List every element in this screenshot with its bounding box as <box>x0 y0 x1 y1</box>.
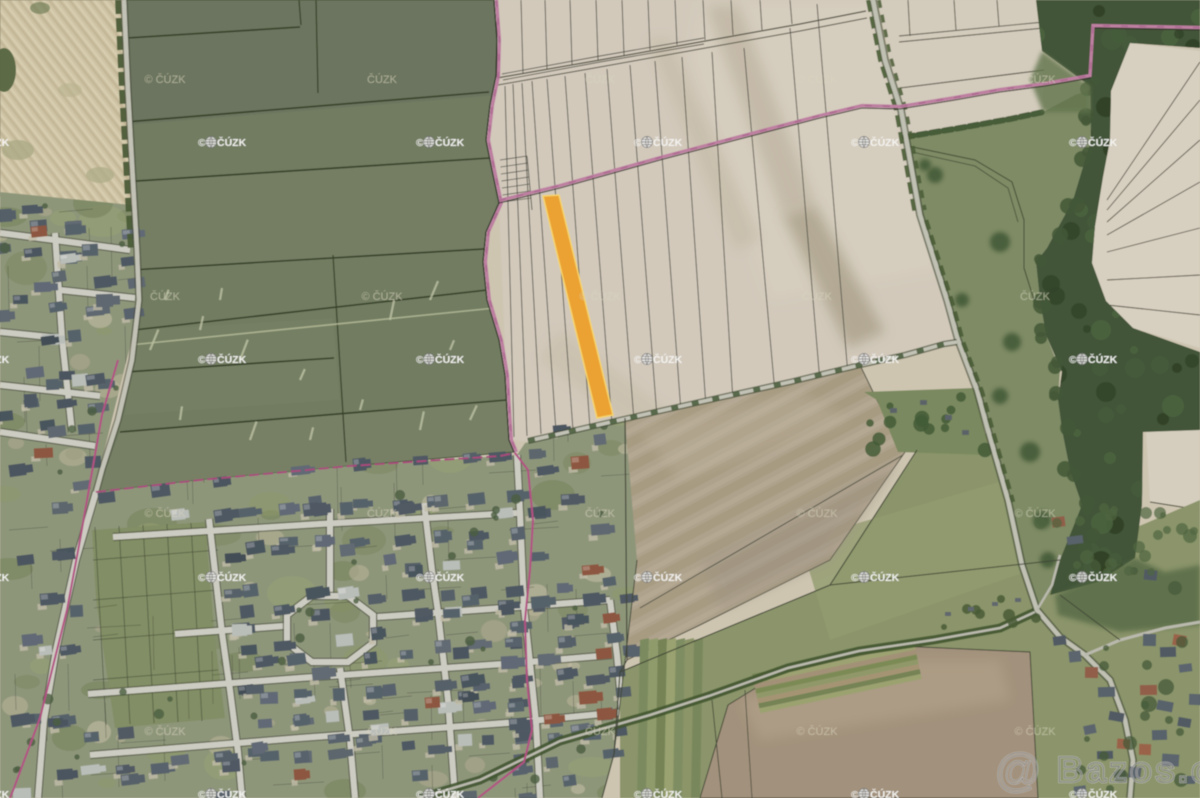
svg-text:ČÚZK: ČÚZK <box>435 353 465 366</box>
svg-text:© ČÚZK: © ČÚZK <box>144 507 186 520</box>
svg-text:©: © <box>634 354 642 366</box>
svg-text:ČÚZK: ČÚZK <box>653 788 683 798</box>
svg-text:ČÚZK: ČÚZK <box>0 136 10 149</box>
svg-text:ČÚZK: ČÚZK <box>802 290 833 303</box>
svg-text:ČÚZK: ČÚZK <box>150 290 181 303</box>
svg-text:©: © <box>634 572 642 584</box>
svg-text:© ČÚZK: © ČÚZK <box>144 73 186 86</box>
svg-text:©: © <box>198 137 206 149</box>
svg-text:ČÚZK: ČÚZK <box>870 136 900 149</box>
svg-text:©: © <box>198 572 206 584</box>
svg-text:@: @ <box>995 744 1042 796</box>
svg-text:Bazos.cz: Bazos.cz <box>1057 749 1200 790</box>
svg-text:ČÚZK: ČÚZK <box>367 73 398 86</box>
svg-text:©: © <box>851 354 859 366</box>
svg-text:ČÚZK: ČÚZK <box>0 571 10 584</box>
svg-text:ČÚZK: ČÚZK <box>585 507 616 520</box>
svg-text:ČÚZK: ČÚZK <box>1020 290 1051 303</box>
svg-text:©: © <box>1069 572 1077 584</box>
svg-text:ČÚZK: ČÚZK <box>653 571 683 584</box>
svg-text:ČÚZK: ČÚZK <box>435 136 465 149</box>
svg-text:ČÚZK: ČÚZK <box>585 73 616 86</box>
svg-text:ČÚZK: ČÚZK <box>870 788 900 798</box>
svg-text:ČÚZK: ČÚZK <box>0 788 10 798</box>
svg-text:ČÚZK: ČÚZK <box>435 788 465 798</box>
svg-text:©: © <box>198 789 206 798</box>
svg-text:ČÚZK: ČÚZK <box>0 353 10 366</box>
svg-text:©: © <box>416 572 424 584</box>
svg-text:©: © <box>851 789 859 798</box>
svg-text:ČÚZK: ČÚZK <box>653 353 683 366</box>
svg-text:ČÚZK: ČÚZK <box>367 507 398 520</box>
svg-text:©: © <box>851 137 859 149</box>
svg-text:ČÚZK: ČÚZK <box>367 725 398 738</box>
svg-text:ČÚZK: ČÚZK <box>1088 571 1118 584</box>
svg-text:© ČÚZK: © ČÚZK <box>579 290 621 303</box>
svg-text:© ČÚZK: © ČÚZK <box>1014 507 1056 520</box>
svg-text:©: © <box>416 789 424 798</box>
svg-text:© ČÚZK: © ČÚZK <box>796 73 838 86</box>
svg-text:©: © <box>198 354 206 366</box>
svg-text:ČÚZK: ČÚZK <box>1088 353 1118 366</box>
svg-text:©: © <box>634 137 642 149</box>
svg-text:ČÚZK: ČÚZK <box>1088 136 1118 149</box>
svg-text:©: © <box>1069 789 1077 798</box>
svg-text:ČÚZK: ČÚZK <box>870 571 900 584</box>
svg-text:© ČÚZK: © ČÚZK <box>361 290 403 303</box>
svg-text:ČÚZK: ČÚZK <box>585 725 616 738</box>
svg-text:ČÚZK: ČÚZK <box>217 353 247 366</box>
svg-text:ČÚZK: ČÚZK <box>653 136 683 149</box>
svg-text:ČÚZK: ČÚZK <box>217 136 247 149</box>
svg-text:©: © <box>634 789 642 798</box>
svg-text:© ČÚZK: © ČÚZK <box>796 507 838 520</box>
svg-text:©: © <box>851 572 859 584</box>
svg-text:© ČÚZK: © ČÚZK <box>796 725 838 738</box>
svg-text:ČÚZK: ČÚZK <box>217 571 247 584</box>
svg-text:© ČÚZK: © ČÚZK <box>1014 725 1056 738</box>
svg-text:ČÚZK: ČÚZK <box>435 571 465 584</box>
svg-text:©: © <box>1069 137 1077 149</box>
svg-text:©: © <box>416 137 424 149</box>
svg-text:©: © <box>1069 354 1077 366</box>
svg-text:ČÚZK: ČÚZK <box>217 788 247 798</box>
svg-text:© ČÚZK: © ČÚZK <box>1014 73 1056 86</box>
svg-text:© ČÚZK: © ČÚZK <box>144 725 186 738</box>
svg-text:ČÚZK: ČÚZK <box>870 353 900 366</box>
svg-text:©: © <box>416 354 424 366</box>
